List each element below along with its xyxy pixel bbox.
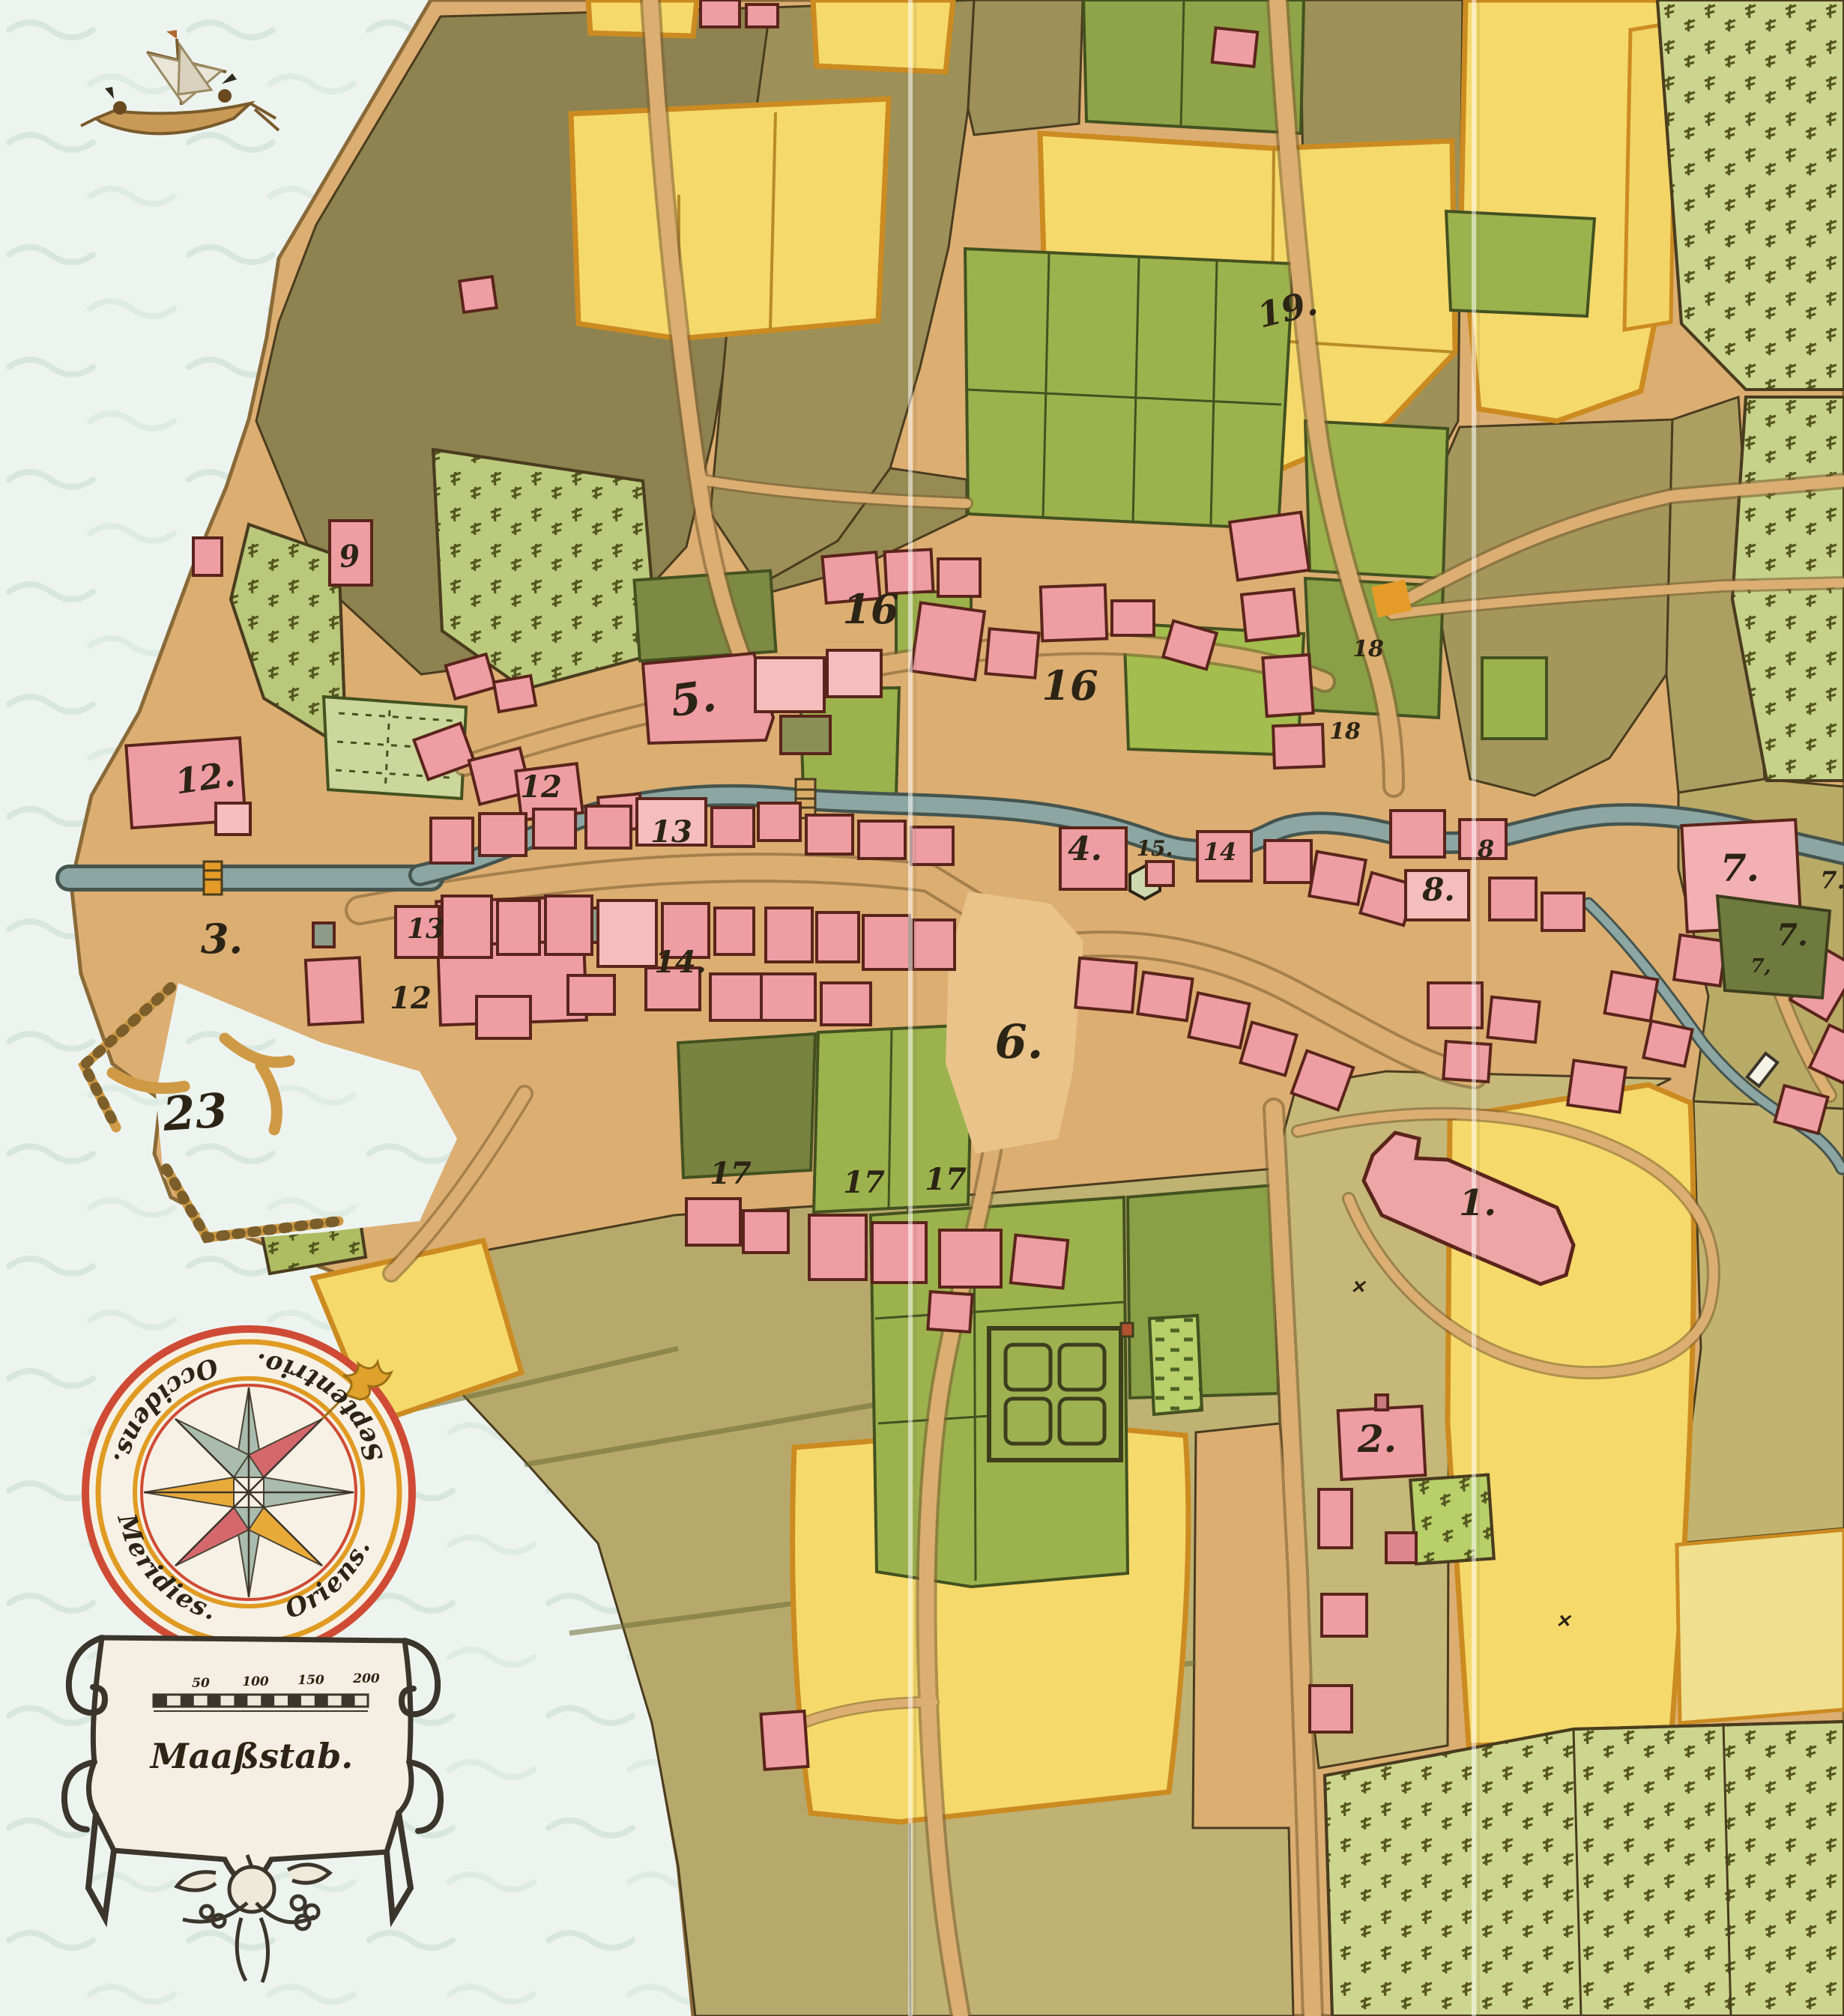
parcel-label: 7. [1720,846,1759,890]
parcel-label: 8 [1477,835,1494,863]
parcel-label: 14. [654,945,707,980]
parcel-label: 9 [337,538,362,575]
parcel-label: 15. [1137,836,1173,861]
parcel-label: 4. [1068,830,1102,868]
parcel-label: 12 [520,769,562,805]
scale-tick-50: 50 [192,1676,210,1691]
scale-caption: Maaßstab. [149,1736,354,1776]
parcel-label: ✕ [1350,1276,1367,1298]
parcel-label: 8. [1421,871,1455,908]
parcel-label: 23 [160,1083,229,1142]
parcel-label: ✕ [1556,1610,1572,1632]
parcel-label: 14 [1203,838,1237,866]
parcel-label: 6. [995,1014,1044,1069]
parcel-label: 17 [710,1156,752,1191]
parcel-label: 16 [842,585,898,633]
parcel-label: 18 [1352,636,1384,662]
parcel-label: 7. [1777,918,1808,953]
parcel-label: 13 [407,913,444,945]
parcel-label: 16 [1042,662,1098,709]
parcel-label: 12 [390,981,432,1016]
compass-rose: Septentrio. Occidens. Meridies. Oriens. [85,1329,412,1656]
parcel-label: 3. [201,915,243,963]
parcel-label: 13 [650,814,692,850]
map-canvas: Septentrio. Occidens. Meridies. Oriens. [0,0,1844,2016]
historic-town-map: Septentrio. Occidens. Meridies. Oriens. [0,0,1844,2016]
parcel-label: 7, [1750,955,1771,978]
parcel-label: 17 [925,1162,967,1197]
parcel-label: 12. [172,754,238,802]
scale-tick-150: 150 [297,1673,324,1688]
parcel-label: 5. [667,670,719,727]
scale-tick-100: 100 [242,1674,269,1689]
parcel-label: 1. [1459,1182,1496,1224]
parcel-label: 2. [1357,1417,1397,1461]
scale-tick-200: 200 [352,1671,380,1686]
dark-green-parcel [1717,896,1830,998]
parcel-label: 18 [1329,718,1361,745]
parcel-label: 7. [1820,866,1844,895]
parcel-label: 17 [843,1165,885,1200]
parterre-garden [989,1323,1133,1460]
